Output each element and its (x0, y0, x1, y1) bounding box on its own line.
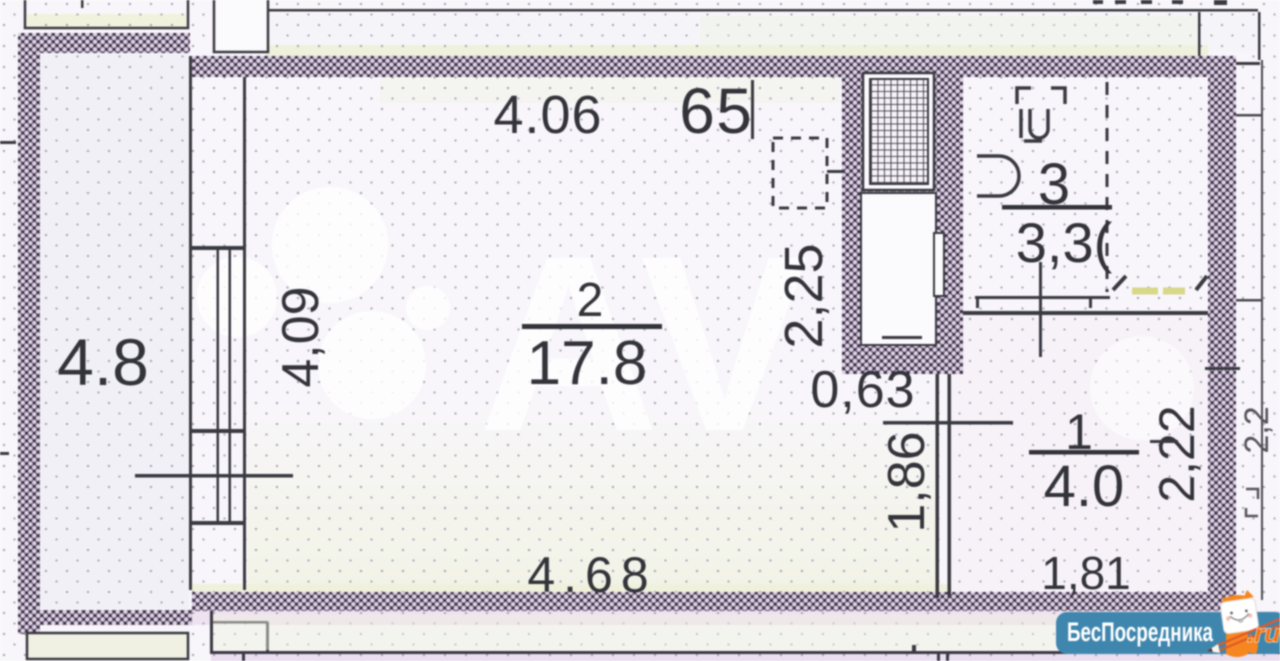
svg-text:17.8: 17.8 (527, 329, 648, 398)
svg-text:1,86: 1,86 (878, 431, 936, 532)
svg-text:0,63: 0,63 (810, 361, 915, 419)
svg-text:2,25: 2,25 (774, 243, 834, 348)
svg-text:5: 5 (716, 75, 752, 147)
svg-text:4,09: 4,09 (272, 286, 330, 387)
svg-text:4.8: 4.8 (57, 325, 149, 399)
svg-text:2: 2 (577, 274, 604, 327)
svg-text:4.0: 4.0 (1044, 454, 1125, 519)
svg-text:.ru: .ru (1247, 618, 1280, 648)
svg-text:3,3(: 3,3( (1016, 211, 1113, 274)
svg-text:1,81: 1,81 (1041, 547, 1131, 599)
svg-text:2,2: 2,2 (1238, 406, 1276, 453)
svg-text:4.06: 4.06 (493, 85, 602, 145)
svg-text:6: 6 (679, 75, 715, 147)
svg-text:4.68: 4.68 (527, 547, 656, 603)
svg-text:БесПосредника: БесПосредника (1067, 617, 1214, 647)
svg-text:2,22: 2,22 (1149, 405, 1205, 502)
